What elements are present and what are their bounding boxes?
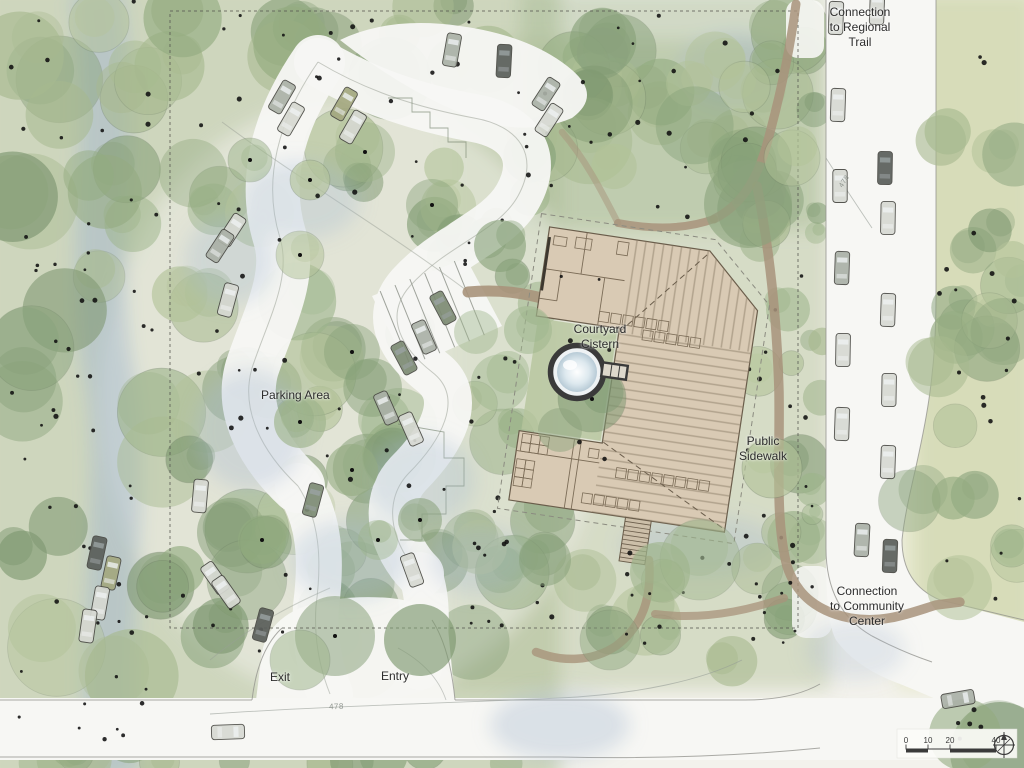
tree-trunk-dot [317, 76, 322, 81]
tree-trunk-dot [117, 620, 120, 623]
tree-trunk-dot [443, 488, 446, 491]
tree-trunk-dot [240, 274, 245, 279]
tree-trunk-dot [811, 505, 814, 508]
tree-trunk-dot [1000, 552, 1003, 555]
tree-trunk-dot [743, 137, 748, 142]
tree-trunk-dot [549, 614, 554, 619]
tree-trunk-dot [945, 559, 948, 562]
tree-trunk-dot [413, 356, 417, 360]
tree-canopy [401, 503, 429, 531]
tree-trunk-dot [523, 133, 526, 136]
tree-trunk-dot [810, 585, 813, 588]
tree-trunk-dot [607, 348, 611, 352]
tree-canopy [241, 145, 268, 172]
tree-trunk-dot [671, 69, 676, 74]
tree-trunk-dot [102, 737, 106, 741]
tree-trunk-dot [140, 701, 145, 706]
tree-trunk-dot [685, 214, 690, 219]
tree-trunk-dot [298, 420, 302, 424]
tree-trunk-dot [631, 594, 634, 597]
tree-trunk-dot [513, 360, 517, 364]
tree-trunk-dot [350, 24, 355, 29]
tree-trunk-dot [238, 369, 241, 372]
tree-trunk-dot [643, 642, 646, 645]
tree-trunk-dot [363, 150, 367, 154]
tree-trunk-dot [1018, 497, 1021, 500]
tree-trunk-dot [608, 132, 612, 136]
tree-trunk-dot [116, 728, 119, 731]
tree-trunk-dot [54, 340, 58, 344]
tree-trunk-dot [657, 14, 661, 18]
tree-trunk-dot [1006, 336, 1010, 340]
tree-trunk-dot [957, 371, 961, 375]
tree-trunk-dot [88, 374, 92, 378]
tree-trunk-dot [129, 630, 134, 635]
tree-trunk-dot [971, 231, 976, 236]
tree-trunk-dot [803, 415, 808, 420]
tree-trunk-dot [197, 371, 201, 375]
tree-trunk-dot [222, 27, 225, 30]
car [496, 44, 512, 78]
tree-trunk-dot [215, 329, 219, 333]
tree-trunk-dot [60, 136, 63, 139]
tree-trunk-dot [430, 203, 434, 207]
tree-trunk-dot [211, 624, 215, 628]
tree-trunk-dot [348, 477, 353, 482]
car [882, 539, 898, 572]
tree-trunk-dot [500, 623, 504, 627]
tree-trunk-dot [463, 259, 467, 263]
tree-trunk-dot [568, 125, 571, 128]
tree-canopy [26, 81, 94, 149]
tree-canopy [516, 309, 549, 342]
tree-trunk-dot [78, 727, 81, 730]
tree-trunk-dot [146, 92, 151, 97]
tree-trunk-dot [463, 262, 467, 266]
tree-trunk-dot [470, 605, 474, 609]
tree-trunk-dot [282, 358, 287, 363]
tree-trunk-dot [80, 298, 85, 303]
tree-trunk-dot [237, 207, 241, 211]
tree-canopy [29, 497, 88, 556]
tree-trunk-dot [45, 58, 49, 62]
tree-canopy [79, 636, 150, 707]
tree-canopy [291, 234, 319, 262]
tree-trunk-dot [805, 485, 808, 488]
tree-trunk-dot [54, 599, 59, 604]
tree-trunk-dot [238, 416, 243, 421]
scale-tick-label: 0 [904, 736, 909, 745]
tree-canopy [454, 310, 498, 354]
tree-trunk-dot [385, 448, 389, 452]
tree-trunk-dot [92, 298, 97, 303]
tree-trunk-dot [1012, 299, 1017, 304]
tree-trunk-dot [763, 611, 766, 614]
tree-trunk-dot [981, 403, 986, 408]
tree-trunk-dot [36, 264, 40, 268]
tree-trunk-dot [517, 91, 520, 94]
tree-trunk-dot [91, 429, 95, 433]
tree-trunk-dot [121, 733, 125, 737]
tree-canopy [706, 642, 738, 674]
car [828, 1, 844, 34]
tree-trunk-dot [483, 554, 486, 557]
tree-trunk-dot [130, 497, 133, 500]
tree-trunk-dot [598, 278, 601, 281]
car [834, 251, 850, 284]
tree-trunk-dot [577, 440, 582, 445]
tree-trunk-dot [978, 55, 982, 59]
tree-canopy [496, 220, 525, 249]
tree-trunk-dot [764, 350, 767, 353]
tree-trunk-dot [84, 268, 87, 271]
tree-trunk-dot [589, 141, 592, 144]
tree-canopy [906, 338, 954, 386]
tree-canopy [580, 610, 640, 670]
tree-trunk-dot [487, 620, 490, 623]
tree-trunk-dot [51, 408, 55, 412]
tree-trunk-dot [117, 582, 122, 587]
tree-trunk-dot [34, 269, 37, 272]
tree-trunk-dot [788, 581, 792, 585]
tree-trunk-dot [467, 21, 470, 24]
tree-trunk-dot [526, 172, 531, 177]
tree-trunk-dot [536, 601, 539, 604]
tree-trunk-dot [18, 716, 21, 719]
tree-trunk-dot [758, 595, 762, 599]
tree-trunk-dot [954, 288, 957, 291]
tree-trunk-dot [978, 725, 983, 730]
tree-trunk-dot [133, 290, 136, 293]
tree-canopy [812, 223, 824, 235]
tree-trunk-dot [602, 457, 606, 461]
tree-trunk-dot [994, 597, 998, 601]
tree-trunk-dot [258, 649, 261, 652]
tree-trunk-dot [525, 145, 529, 149]
tree-trunk-dot [944, 267, 949, 272]
tree-trunk-dot [281, 630, 284, 633]
tree-canopy [986, 208, 1015, 237]
tree-trunk-dot [617, 27, 620, 30]
tree-trunk-dot [495, 495, 500, 500]
tree-canopy [719, 62, 756, 99]
tree-trunk-dot [53, 263, 56, 266]
cistern-water [557, 352, 597, 392]
tree-trunk-dot [473, 542, 477, 546]
tree-trunk-dot [493, 510, 496, 513]
tree-trunk-dot [9, 65, 14, 70]
tree-trunk-dot [502, 542, 507, 547]
tree-canopy [63, 150, 113, 200]
tree-trunk-dot [83, 702, 86, 705]
tree-trunk-dot [723, 41, 728, 46]
tree-trunk-dot [350, 350, 354, 354]
tree-trunk-dot [150, 328, 153, 331]
tree-trunk-dot [418, 518, 422, 522]
tree-trunk-dot [791, 560, 795, 564]
tree-trunk-dot [988, 419, 993, 424]
tree-trunk-dot [477, 376, 480, 379]
tree-trunk-dot [684, 166, 687, 169]
tree-trunk-dot [96, 621, 99, 624]
tree-trunk-dot [972, 707, 977, 712]
tree-canopy [255, 515, 287, 547]
tree-trunk-dot [199, 123, 203, 127]
tree-canopy [799, 473, 821, 495]
tree-trunk-dot [282, 34, 285, 37]
tree-trunk-dot [48, 506, 51, 509]
tree-trunk-dot [638, 80, 641, 83]
tree-canopy [809, 506, 821, 518]
tree-trunk-dot [260, 538, 264, 542]
tree-trunk-dot [656, 205, 660, 209]
tree-trunk-dot [430, 71, 434, 75]
tree-trunk-dot [333, 634, 337, 638]
tree-trunk-dot [794, 630, 797, 633]
tree-trunk-dot [115, 675, 118, 678]
tree-trunk-dot [967, 721, 972, 726]
tree-trunk-dot [237, 97, 242, 102]
tree-trunk-dot [217, 202, 220, 205]
car [834, 407, 850, 440]
tree-trunk-dot [625, 633, 628, 636]
tree-canopy [12, 11, 64, 63]
tree-trunk-dot [790, 543, 795, 548]
tree-trunk-dot [87, 222, 90, 225]
tree-trunk-dot [750, 111, 754, 115]
tree-trunk-dot [581, 80, 585, 84]
scale-tick-label: 20 [946, 736, 955, 745]
tree-canopy [994, 529, 1024, 559]
car [881, 201, 896, 234]
tree-trunk-dot [130, 198, 133, 201]
tree-trunk-dot [632, 42, 635, 45]
tree-trunk-dot [142, 324, 146, 328]
tree-trunk-dot [376, 538, 380, 542]
tree-trunk-dot [775, 69, 779, 73]
site-plan: 0102040 Connection to Regional Trail Cou… [0, 0, 1024, 768]
tree-canopy [296, 161, 324, 189]
tree-trunk-dot [76, 374, 79, 377]
tree-trunk-dot [253, 368, 257, 372]
tree-canopy [805, 92, 825, 112]
tree-trunk-dot [627, 550, 632, 555]
tree-trunk-dot [145, 122, 150, 127]
tree-trunk-dot [181, 594, 185, 598]
tree-trunk-dot [560, 275, 563, 278]
tree-trunk-dot [407, 483, 412, 488]
tree-trunk-dot [337, 57, 340, 60]
tree-trunk-dot [21, 127, 25, 131]
tree-trunk-dot [370, 18, 374, 22]
tree-canopy [538, 408, 582, 452]
tree-trunk-dot [549, 184, 553, 188]
tree-canopy [925, 108, 971, 154]
tree-trunk-dot [411, 235, 414, 238]
tree-trunk-dot [129, 484, 132, 487]
tree-trunk-dot [568, 338, 573, 343]
tree-trunk-dot [352, 190, 357, 195]
tree-canopy [159, 139, 228, 208]
tree-trunk-dot [398, 393, 401, 396]
tree-trunk-dot [350, 468, 354, 472]
car [830, 88, 846, 121]
car [836, 333, 851, 366]
car [869, 0, 885, 25]
tree-trunk-dot [461, 183, 464, 186]
tree-trunk-dot [755, 582, 758, 585]
tree-trunk-dot [229, 425, 234, 430]
tree-trunk-dot [308, 178, 312, 182]
tree-trunk-dot [284, 573, 288, 577]
tree-canopy [137, 560, 189, 612]
tree-trunk-dot [990, 271, 995, 276]
tree-trunk-dot [338, 407, 341, 410]
tree-trunk-dot [37, 19, 40, 22]
car [880, 445, 896, 478]
tree-trunk-dot [326, 454, 329, 457]
tree-trunk-dot [315, 194, 320, 199]
tree-trunk-dot [956, 721, 960, 725]
tree-canopy [743, 543, 772, 572]
tree-trunk-dot [66, 347, 70, 351]
tree-trunk-dot [23, 458, 26, 461]
tree-trunk-dot [981, 395, 986, 400]
tree-canopy [8, 594, 76, 662]
tree-canopy [933, 404, 977, 448]
car [878, 151, 893, 184]
tree-trunk-dot [625, 572, 629, 576]
tree-trunk-dot [648, 592, 651, 595]
tree-trunk-dot [283, 146, 287, 150]
tree-trunk-dot [82, 545, 86, 549]
tree-trunk-dot [389, 99, 393, 103]
car [191, 479, 208, 513]
tree-trunk-dot [53, 414, 58, 419]
car [880, 293, 896, 326]
tree-trunk-dot [782, 641, 785, 644]
car [854, 523, 870, 557]
tree-trunk-dot [309, 587, 312, 590]
tree-trunk-dot [503, 356, 507, 360]
tree-trunk-dot [468, 241, 471, 244]
car [211, 724, 244, 740]
cistern-pipe [601, 362, 628, 379]
tree-trunk-dot [266, 427, 269, 430]
tree-trunk-dot [657, 625, 661, 629]
tree-canopy [369, 520, 391, 542]
tree-trunk-dot [24, 235, 28, 239]
tree-canopy [487, 351, 530, 394]
tree-trunk-dot [727, 562, 731, 566]
tree-trunk-dot [40, 424, 43, 427]
tree-trunk-dot [329, 31, 333, 35]
tree-trunk-dot [982, 60, 987, 65]
tree-trunk-dot [278, 238, 282, 242]
tree-canopy [933, 558, 974, 599]
tree-trunk-dot [470, 622, 473, 625]
tree-canopy [519, 539, 550, 570]
tree-trunk-dot [415, 160, 418, 163]
tree-trunk-dot [469, 419, 473, 423]
tree-trunk-dot [800, 274, 804, 278]
tree-trunk-dot [100, 129, 104, 133]
tree-trunk-dot [20, 670, 23, 673]
tree-trunk-dot [1005, 369, 1008, 372]
tree-trunk-dot [248, 158, 252, 162]
tree-canopy [932, 477, 975, 520]
tree-canopy [777, 126, 817, 166]
tree-canopy [746, 440, 780, 474]
tree-trunk-dot [635, 120, 640, 125]
tree-trunk-dot [788, 404, 792, 408]
tree-trunk-dot [10, 391, 14, 395]
tree-trunk-dot [476, 545, 481, 550]
tree-canopy [270, 630, 330, 690]
tree-canopy [281, 401, 312, 432]
tree-trunk-dot [667, 131, 672, 136]
tree-trunk-dot [751, 637, 755, 641]
site-plan-canvas: 0102040 [0, 0, 1024, 768]
tree-canopy [806, 203, 821, 218]
tree-trunk-dot [298, 253, 302, 257]
tree-trunk-dot [145, 615, 148, 618]
car [882, 373, 897, 406]
tree-canopy [595, 145, 620, 170]
tree-trunk-dot [145, 688, 148, 691]
tree-trunk-dot [154, 213, 158, 217]
tree-canopy [632, 543, 672, 583]
tree-trunk-dot [762, 514, 766, 518]
car [833, 170, 847, 203]
tree-trunk-dot [744, 534, 749, 539]
tree-trunk-dot [74, 504, 78, 508]
tree-trunk-dot [937, 291, 942, 296]
tree-canopy [384, 604, 456, 676]
scale-tick-label: 10 [924, 736, 933, 745]
tree-trunk-dot [87, 251, 90, 254]
tree-trunk-dot [239, 14, 242, 17]
